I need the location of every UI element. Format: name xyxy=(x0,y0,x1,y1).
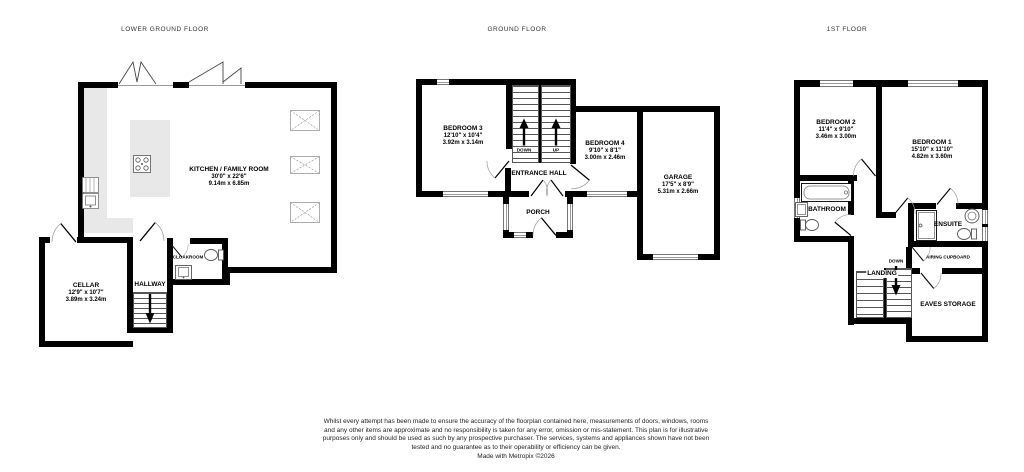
toilet-icon xyxy=(957,227,978,241)
kitchen-counter xyxy=(84,218,133,233)
room-dims-m: 3.89m x 3.24m xyxy=(66,297,107,304)
sink-icon xyxy=(795,202,808,217)
room-dims-ft: 15'10" x 11'10" xyxy=(911,147,953,154)
up-arrow-icon xyxy=(551,118,561,146)
wall xyxy=(942,268,988,274)
wall xyxy=(698,254,720,260)
double-door-arc xyxy=(530,178,564,197)
window xyxy=(908,80,958,87)
porch-glazing xyxy=(503,204,509,230)
wall xyxy=(567,196,573,204)
window xyxy=(982,227,988,241)
wall xyxy=(848,237,854,325)
room-name: BEDROOM 4 xyxy=(585,140,626,148)
sink-icon xyxy=(964,208,980,224)
wall xyxy=(331,82,337,273)
wall xyxy=(39,237,45,347)
room-label-ensuite: ENSUITE xyxy=(934,221,962,229)
room-dims-ft: 9'10" x 8'1" xyxy=(585,148,626,155)
room-dims-ft: 30'0" x 22'6" xyxy=(189,174,268,181)
wall xyxy=(982,241,988,342)
room-name: GARAGE xyxy=(658,174,699,182)
room-label-eaves-storage: EAVES STORAGE xyxy=(920,301,975,309)
room-label-bedroom4: BEDROOM 4 9'10" x 8'1" 3.00m x 2.46m xyxy=(585,140,626,162)
wall xyxy=(637,106,643,260)
floor-title-ground: GROUND FLOOR xyxy=(487,26,546,33)
room-dims-ft: 12'9" x 10'7" xyxy=(66,290,107,297)
porch-glazing xyxy=(514,232,526,238)
room-dims-m: 4.82m x 3.60m xyxy=(911,154,953,161)
room-dims-ft: 11'4" x 9'10" xyxy=(816,127,857,134)
room-dims-ft: 12'10" x 10'4" xyxy=(443,133,484,140)
wall xyxy=(848,318,912,324)
room-label-bedroom2: BEDROOM 2 11'4" x 9'10" 3.46m x 3.00m xyxy=(816,119,857,141)
wall xyxy=(503,196,509,204)
wall xyxy=(416,191,443,197)
bathtub-icon xyxy=(801,183,852,202)
kitchen-sink-icon xyxy=(82,193,99,209)
stairs-down-label: DOWN xyxy=(517,148,532,153)
window xyxy=(587,191,627,197)
skylight-icon xyxy=(290,156,320,174)
window xyxy=(443,191,488,197)
wall xyxy=(416,79,422,197)
door-arc xyxy=(51,217,77,243)
room-dims-m: 3.46m x 3.00m xyxy=(816,134,857,141)
wall xyxy=(78,82,84,243)
wall xyxy=(503,232,514,238)
door-arc xyxy=(829,214,853,237)
wall xyxy=(714,106,720,260)
garage-door xyxy=(653,254,698,260)
stairs-up-label: UP xyxy=(553,148,559,153)
wall xyxy=(982,80,988,210)
up-arrow-icon xyxy=(519,118,529,146)
bifold-door-icon xyxy=(118,59,173,85)
room-dims-m: 5.31m x 2.66m xyxy=(658,189,699,196)
door-arc xyxy=(486,160,510,184)
stair-divider xyxy=(539,85,541,163)
room-name: BEDROOM 1 xyxy=(911,139,953,147)
floorplan-canvas: LOWER GROUND FLOOR xyxy=(0,0,1024,472)
door-opening xyxy=(118,85,173,86)
wall xyxy=(39,341,133,347)
wall xyxy=(906,336,988,342)
room-dims-m: 3.92m x 3.14m xyxy=(443,140,484,147)
window xyxy=(437,79,449,85)
door-arc xyxy=(570,164,596,190)
room-dims-ft: 17'5" x 8'9" xyxy=(658,182,699,189)
wall xyxy=(224,267,337,273)
room-label-bathroom: BATHROOM xyxy=(808,206,846,214)
door-arc xyxy=(138,216,166,242)
room-label-bedroom1: BEDROOM 1 15'10" x 11'10" 4.82m x 3.60m xyxy=(911,139,953,161)
toilet-icon xyxy=(800,218,819,232)
room-label-porch: PORCH xyxy=(526,209,549,217)
toilet-icon xyxy=(204,248,225,262)
skylight-icon xyxy=(290,202,320,223)
down-arrow-icon xyxy=(145,294,155,324)
wall xyxy=(794,236,854,242)
sliding-door-icon xyxy=(189,59,245,85)
room-dims-m: 3.00m x 2.46m xyxy=(585,155,626,162)
wall xyxy=(876,212,896,218)
window xyxy=(982,210,988,224)
door-opening xyxy=(189,85,245,86)
room-dims-m: 9.14m x 6.85m xyxy=(189,181,268,188)
room-label-cloakroom: CLOAKROOM xyxy=(173,255,204,260)
room-label-garage: GARAGE 17'5" x 8'9" 5.31m x 2.66m xyxy=(658,174,699,196)
wall xyxy=(173,82,189,88)
room-label-hallway: HALLWAY xyxy=(134,281,165,289)
room-name: CELLAR xyxy=(66,282,107,290)
door-arc xyxy=(920,272,942,294)
room-label-landing: LANDING xyxy=(866,270,898,278)
wall xyxy=(77,237,133,243)
hob-icon xyxy=(133,155,151,173)
door-arc xyxy=(852,153,877,177)
skylight-icon xyxy=(290,110,320,131)
room-label-entrance-hall: ENTRANCE HALL xyxy=(511,170,566,178)
door-arc xyxy=(894,192,916,215)
room-name: BEDROOM 3 xyxy=(443,125,484,133)
made-with-text: Made with Metropix ©2026 xyxy=(320,453,712,462)
stairs-down-label: DOWN xyxy=(889,259,904,264)
room-label-bedroom3: BEDROOM 3 12'10" x 10'4" 3.92m x 3.14m xyxy=(443,125,484,147)
wall xyxy=(570,106,720,112)
disclaimer: Whilst every attempt has been made to en… xyxy=(320,418,712,461)
wall xyxy=(556,232,573,238)
floor-title-lower-ground: LOWER GROUND FLOOR xyxy=(121,26,209,33)
porch-glazing xyxy=(567,204,573,230)
room-label-kitchen: KITCHEN / FAMILY ROOM 30'0" x 22'6" 9.14… xyxy=(189,166,268,188)
room-label-airing-cupboard: AIRING CUPBOARD xyxy=(926,255,970,260)
wall xyxy=(245,82,337,88)
door-arc xyxy=(936,182,959,206)
draining-board-icon xyxy=(82,177,99,193)
wall xyxy=(853,80,908,87)
stairs xyxy=(856,271,884,318)
window xyxy=(820,80,853,87)
disclaimer-text: Whilst every attempt has been made to en… xyxy=(320,418,712,453)
wall xyxy=(637,254,653,260)
room-label-cellar: CELLAR 12'9" x 10'7" 3.89m x 3.24m xyxy=(66,282,107,304)
sink-icon xyxy=(175,265,192,280)
wall xyxy=(78,82,118,88)
room-name: BEDROOM 2 xyxy=(816,119,857,127)
floor-title-first: 1ST FLOOR xyxy=(827,26,868,33)
room-name: KITCHEN / FAMILY ROOM xyxy=(189,166,268,174)
